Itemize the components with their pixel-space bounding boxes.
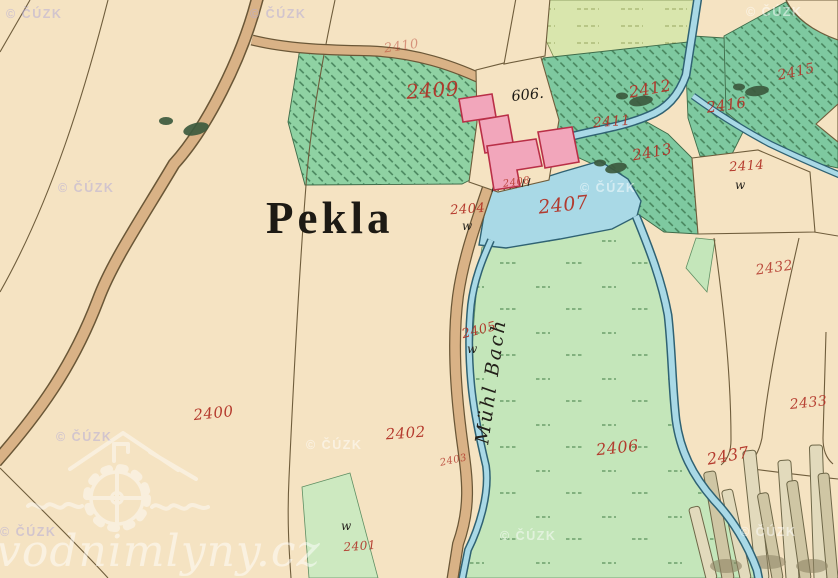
cadastral-map-canvas[interactable]: 2410240924122415241624112413241424082404…	[0, 0, 838, 578]
cuzk-watermark: © ČÚZK	[58, 180, 114, 195]
cuzk-watermark: © ČÚZK	[746, 4, 802, 19]
parcel-label-2401: 2401	[342, 538, 376, 554]
cuzk-watermark: © ČÚZK	[306, 437, 362, 452]
parcel-label-2414: 2414	[728, 158, 765, 175]
cuzk-watermark: © ČÚZK	[56, 429, 112, 444]
parcel-label-2409: 2409	[404, 76, 459, 104]
cuzk-watermark: © ČÚZK	[500, 528, 556, 543]
cuzk-watermark: © ČÚZK	[740, 524, 796, 539]
w-mark: w	[735, 178, 746, 192]
map-viewport[interactable]: 2410240924122415241624112413241424082404…	[0, 0, 838, 578]
w-mark: w	[341, 519, 352, 533]
cuzk-watermark: © ČÚZK	[580, 180, 636, 195]
house-number-label: 606.	[511, 86, 545, 105]
parcel-label-2404: 2404	[449, 201, 486, 218]
brand-watermark-text: vodnimlyny.cz	[0, 526, 321, 577]
parcel-label-2411: 2411	[591, 113, 631, 132]
parcel-label-2402: 2402	[384, 423, 426, 444]
cuzk-watermark: © ČÚZK	[6, 6, 62, 21]
place-name-label: Pekla	[266, 193, 394, 243]
w-mark: w	[462, 219, 473, 233]
cuzk-watermark: © ČÚZK	[250, 6, 306, 21]
w-mark: w	[467, 342, 478, 356]
